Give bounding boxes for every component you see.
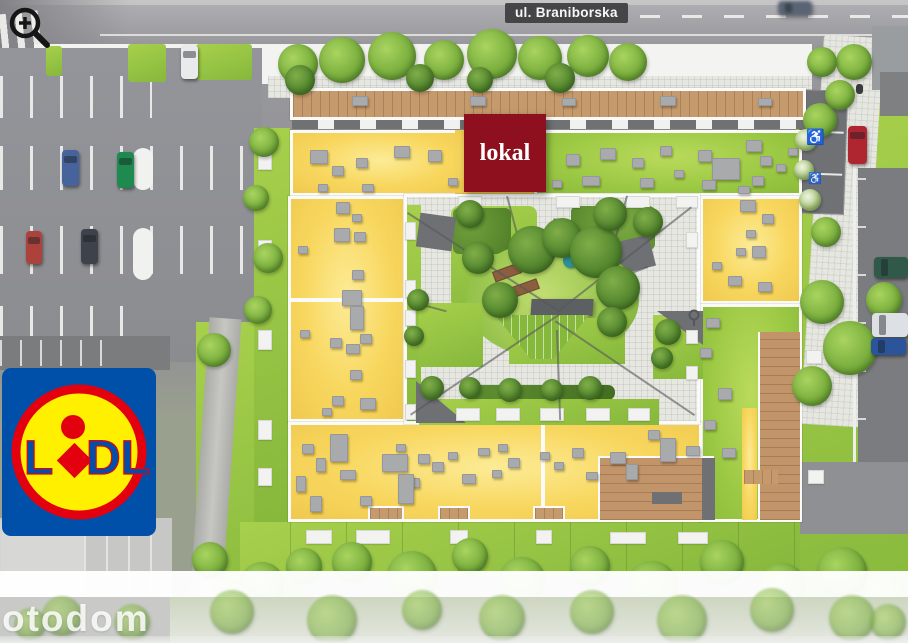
roof-unit-box (428, 150, 442, 162)
roof-unit-box (648, 430, 660, 440)
tree (319, 37, 365, 83)
decor-layer (0, 0, 908, 643)
site-plan: L DL ♿ ♿ (0, 0, 908, 643)
tree (825, 80, 855, 110)
roof-unit-box (396, 444, 406, 452)
roof-unit-box (382, 454, 408, 472)
roof-unit-box (552, 180, 562, 188)
roof-unit-box (712, 262, 722, 270)
tree (807, 47, 837, 77)
tree (459, 377, 481, 399)
roof-unit-box (712, 158, 740, 180)
car (871, 338, 906, 355)
balcony (536, 530, 552, 544)
roof-unit-box (356, 158, 368, 168)
roof-unit-box (674, 170, 684, 178)
tree (467, 67, 493, 93)
balcony (686, 330, 698, 344)
roof-unit-box (332, 396, 344, 406)
roof-unit-box (562, 98, 576, 106)
car (181, 45, 198, 79)
tree (243, 185, 269, 211)
tree (285, 65, 315, 95)
roof-unit-box (752, 246, 766, 258)
balcony (258, 420, 272, 440)
roof-unit-box (354, 232, 366, 242)
roof-unit-box (318, 184, 328, 192)
roof-unit-box (498, 444, 508, 452)
car (62, 150, 79, 186)
roof-unit-box (760, 156, 772, 166)
roof-unit-box (554, 462, 564, 470)
tree (811, 217, 841, 247)
roof-unit-box (492, 470, 502, 478)
balcony (556, 196, 580, 208)
roof-unit-box (736, 248, 746, 256)
car (872, 313, 908, 337)
balcony (258, 330, 272, 350)
wheelchair-icon: ♿ (806, 128, 825, 146)
balcony (456, 408, 480, 421)
roof-unit-box (330, 434, 348, 462)
roof-unit-box (566, 154, 580, 166)
roof-unit-box (332, 166, 344, 176)
roof-unit-box (394, 146, 410, 158)
tree (498, 378, 522, 402)
tree (593, 197, 627, 231)
tree (836, 44, 872, 80)
roof-unit-box (316, 458, 326, 472)
tree (799, 189, 821, 211)
roof-unit-box (752, 176, 764, 186)
car (778, 1, 812, 15)
car (117, 152, 134, 188)
car (81, 229, 98, 264)
roof-unit-box (352, 214, 362, 222)
roof-unit-box (296, 476, 306, 492)
balcony (808, 470, 824, 484)
balcony (806, 350, 822, 364)
tree (545, 63, 575, 93)
car (874, 257, 908, 278)
roof-unit-box (352, 270, 364, 280)
roof-unit-box (340, 470, 356, 480)
roof-unit-box (758, 98, 772, 106)
roof-unit-box (704, 420, 716, 430)
roof-unit-box (698, 150, 712, 162)
tree (244, 296, 272, 324)
roof-unit-box (660, 96, 676, 106)
roof-unit-box (626, 464, 638, 480)
roof-unit-box (310, 496, 322, 512)
tree (792, 366, 832, 406)
tree (609, 43, 647, 81)
tree (596, 266, 640, 310)
balcony (306, 530, 332, 544)
roof-unit-box (336, 202, 350, 214)
roof-unit-box (350, 370, 362, 380)
roof-unit-box (728, 276, 742, 286)
tree (197, 333, 231, 367)
balcony (405, 222, 416, 240)
roof-unit-box (478, 448, 490, 456)
roof-unit-box (762, 214, 774, 224)
roof-unit-box (352, 96, 368, 106)
tree (420, 376, 444, 400)
tree (655, 319, 681, 345)
unit-highlight[interactable]: lokal (464, 114, 546, 192)
tree (456, 200, 484, 228)
roof-unit-box (302, 444, 314, 454)
roof-unit-box (298, 246, 308, 254)
tree (541, 379, 563, 401)
car (848, 126, 867, 164)
roof-unit-box (600, 148, 616, 160)
roof-unit-box (640, 178, 654, 188)
roof-unit-box (448, 178, 458, 186)
path-line (410, 313, 560, 415)
roof-unit-box (300, 330, 310, 338)
roof-unit-box (610, 452, 626, 464)
roof-unit-box (586, 472, 598, 480)
roof-unit-box (686, 446, 700, 456)
tree (404, 326, 424, 346)
roof-unit-box (398, 474, 414, 504)
roof-unit-box (346, 344, 360, 354)
roof-unit-box (632, 158, 644, 168)
roof-unit-box (310, 150, 328, 164)
tree (597, 307, 627, 337)
balcony (356, 530, 390, 544)
balcony (628, 408, 650, 421)
balcony (678, 532, 708, 544)
roof-unit-box (702, 180, 716, 190)
roof-unit-box (322, 408, 332, 416)
roof-unit-box (432, 462, 444, 472)
tree (407, 289, 429, 311)
balcony (686, 366, 698, 380)
roof-unit-box (418, 454, 430, 464)
roof-unit-box (740, 200, 756, 212)
balcony (405, 360, 416, 378)
roof-unit-box (582, 176, 600, 186)
balcony (610, 532, 646, 544)
tree (800, 280, 844, 324)
tree (651, 347, 673, 369)
car (26, 231, 42, 264)
roof-unit-box (470, 96, 486, 106)
tree (462, 242, 494, 274)
roof-unit-box (360, 496, 372, 506)
path-line (556, 330, 561, 420)
roof-unit-box (350, 306, 364, 330)
roof-unit-box (362, 184, 374, 192)
roof-unit-box (700, 348, 712, 358)
street-label: ul. Braniborska (505, 3, 628, 23)
roof-unit-box (508, 458, 520, 468)
roof-unit-box (706, 318, 720, 328)
roof-unit-box (360, 398, 376, 410)
roof-unit-box (448, 452, 458, 460)
roof-unit-box (722, 448, 736, 458)
roof-unit-box (758, 282, 772, 292)
roof-unit-box (462, 474, 476, 484)
tree (633, 207, 663, 237)
roof-unit-box (540, 452, 550, 460)
zoom-in-icon[interactable] (6, 4, 54, 52)
white-band (0, 571, 908, 597)
roof-unit-box (342, 290, 362, 306)
balcony (586, 408, 610, 421)
balcony (686, 232, 698, 248)
roof-unit-box (718, 388, 732, 400)
roof-unit-box (334, 228, 350, 242)
tree (253, 243, 283, 273)
tree (406, 64, 434, 92)
wheelchair-icon: ♿ (808, 172, 822, 185)
roof-unit-box (660, 438, 676, 462)
watermark: otodom (2, 598, 150, 640)
roof-unit-box (360, 334, 372, 344)
tree (578, 376, 602, 400)
roof-unit-box (776, 164, 786, 172)
balcony (496, 408, 520, 421)
roof-unit-box (330, 338, 342, 348)
balcony (258, 468, 272, 486)
balcony (405, 310, 416, 326)
tree (452, 538, 488, 574)
roof-unit-box (746, 230, 756, 238)
tree (249, 127, 279, 157)
balcony (676, 196, 698, 208)
roof-unit-box (572, 448, 584, 458)
tree (823, 321, 877, 375)
roof-unit-box (746, 140, 762, 152)
roof-unit-box (738, 186, 750, 194)
roof-unit-box (660, 146, 672, 156)
tree (482, 282, 518, 318)
roof-unit-box (788, 148, 798, 156)
